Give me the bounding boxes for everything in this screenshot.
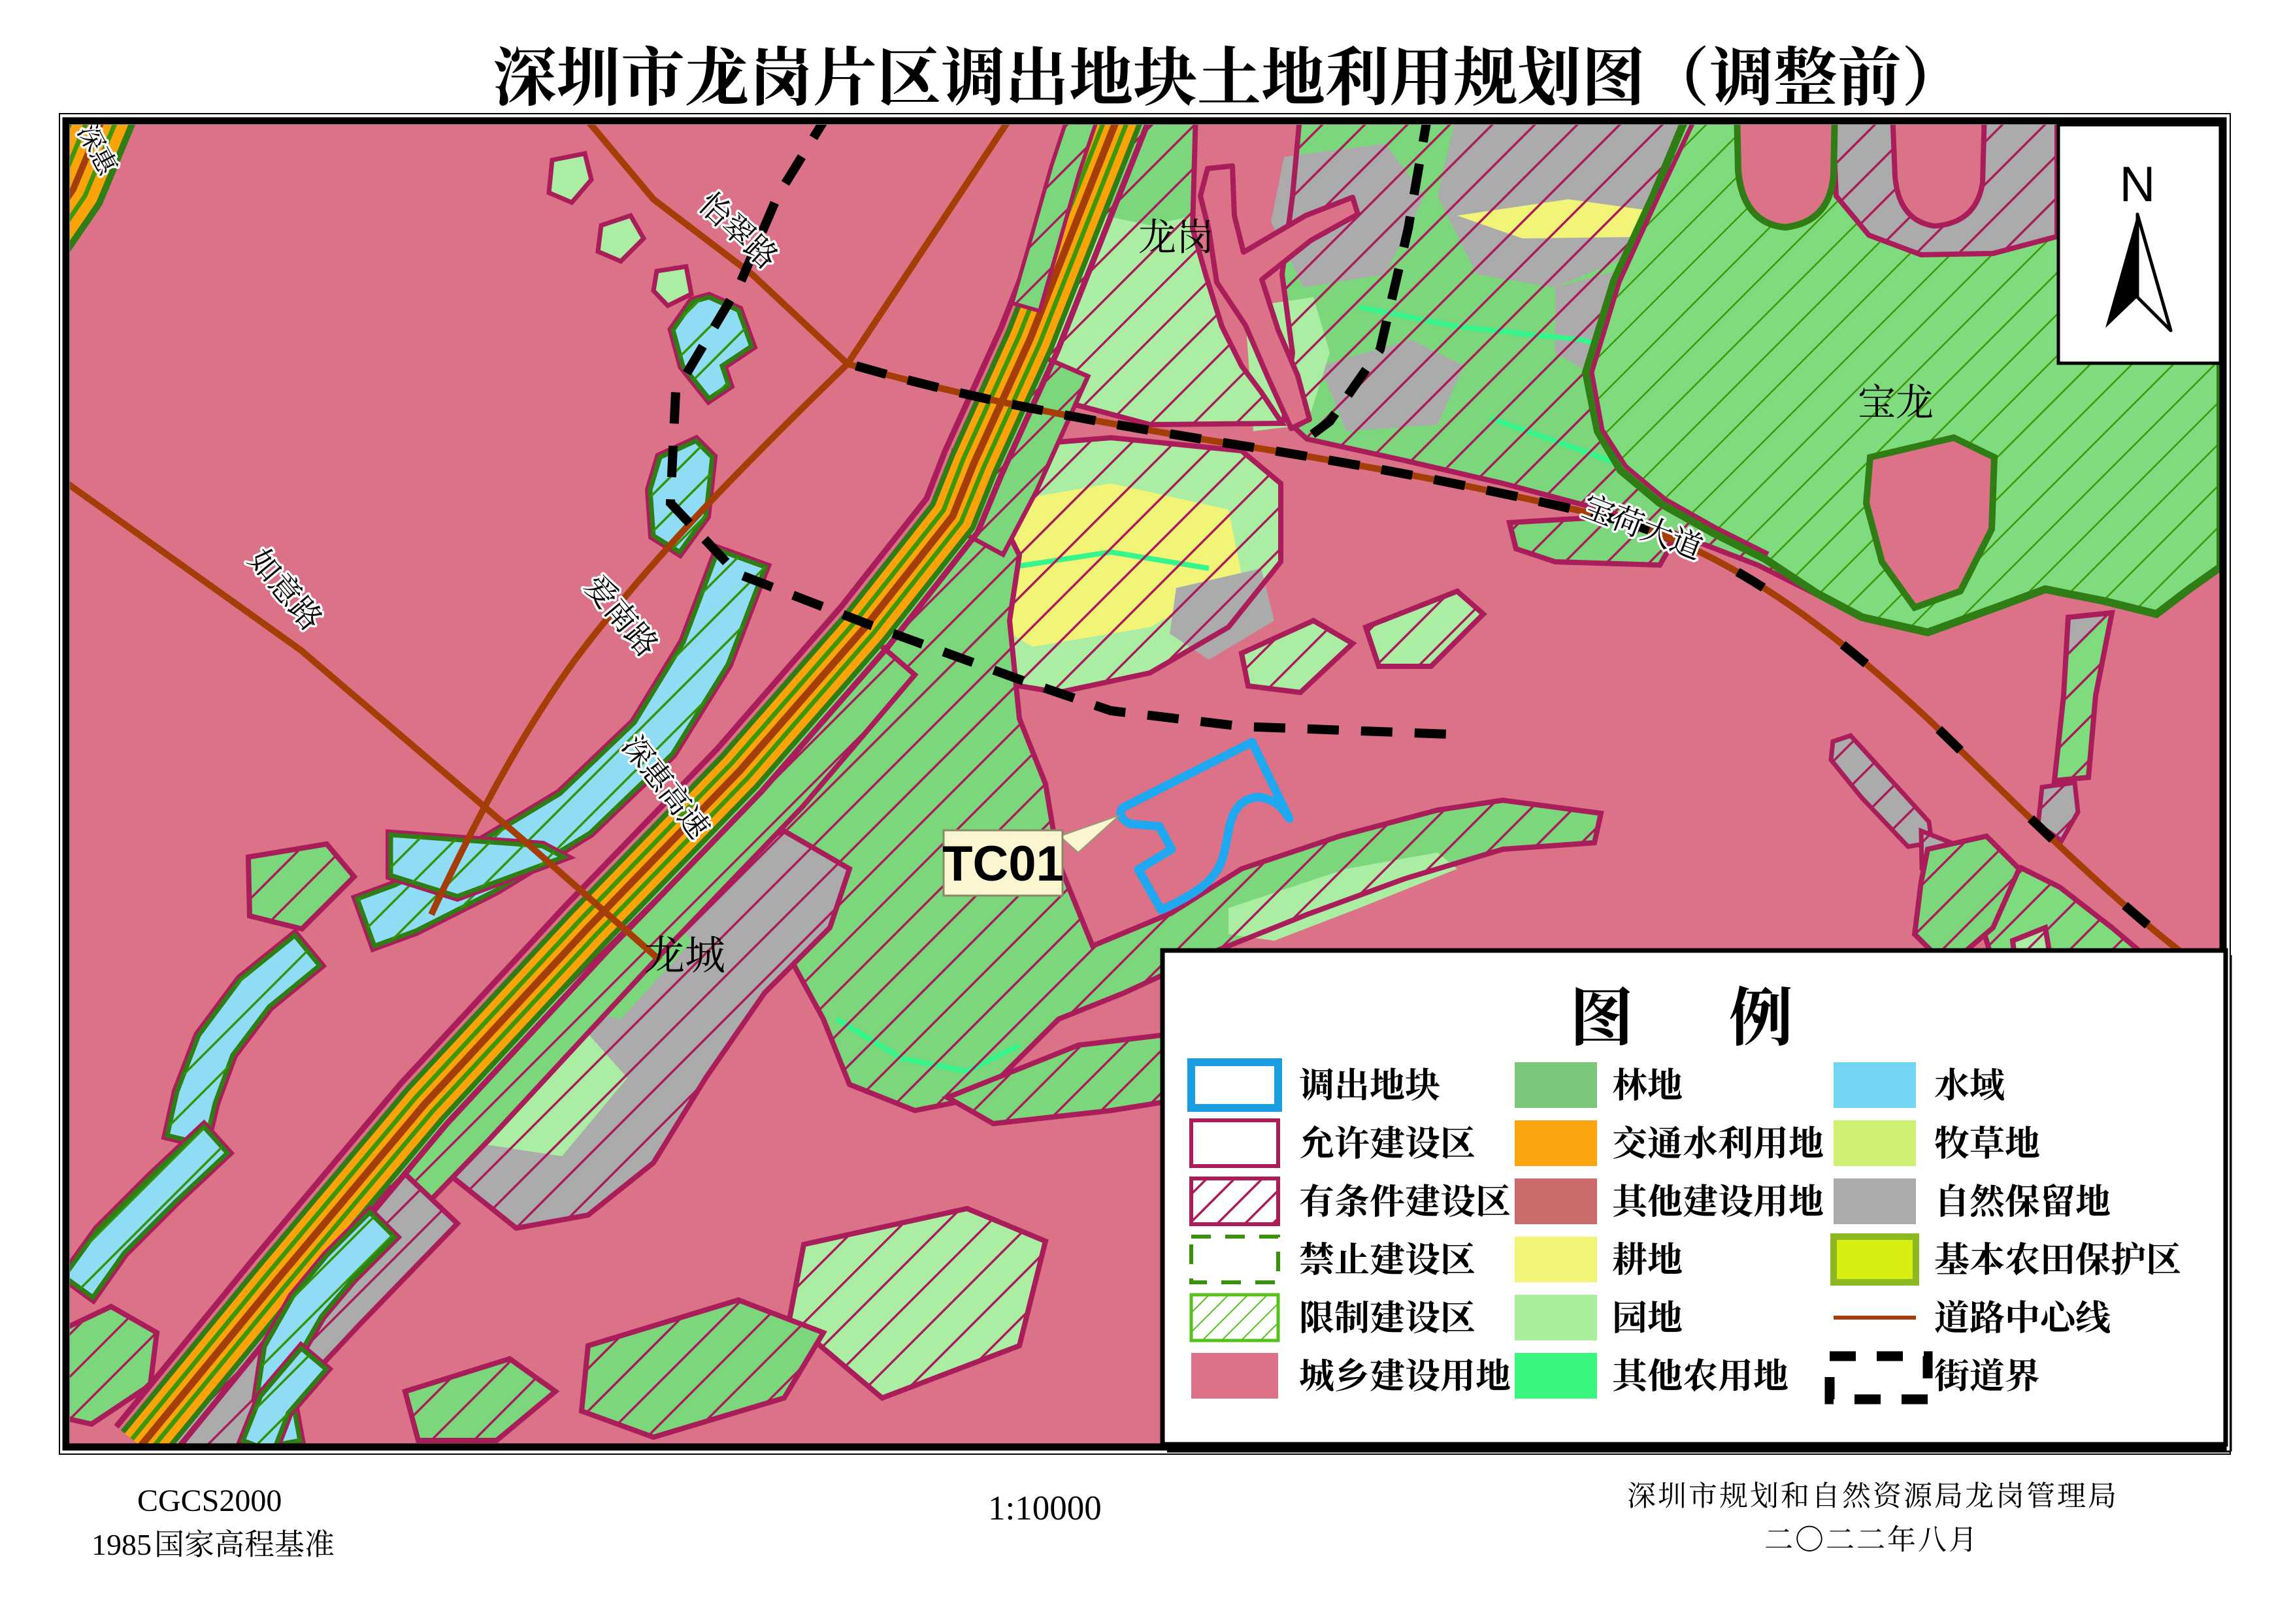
svg-text:1:10000: 1:10000 [988, 1489, 1102, 1527]
svg-text:1985: 1985 [91, 1528, 152, 1561]
svg-text:CGCS2000: CGCS2000 [137, 1484, 282, 1518]
svg-text:TC01: TC01 [942, 836, 1064, 892]
svg-text:N: N [2120, 157, 2156, 212]
